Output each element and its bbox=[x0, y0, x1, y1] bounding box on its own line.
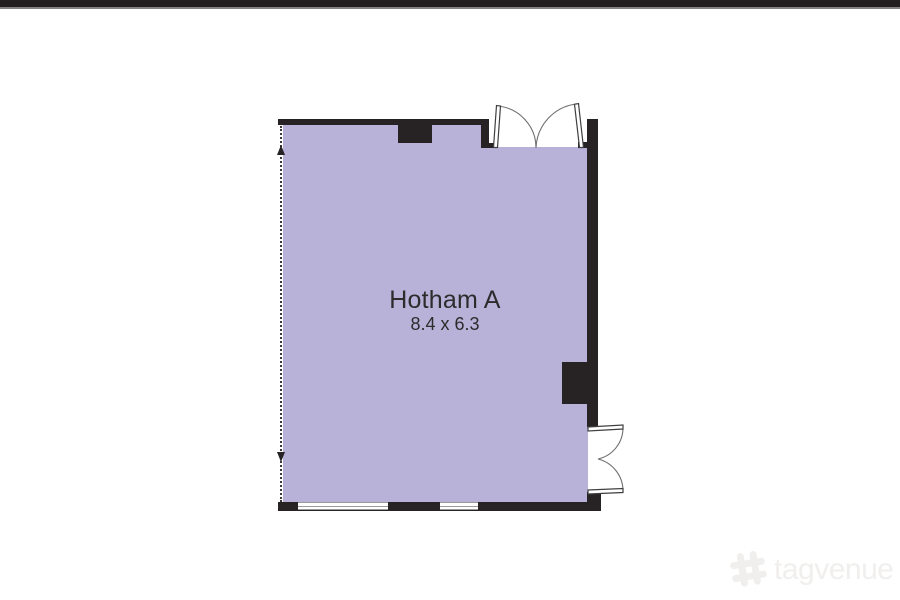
dimension-line-left bbox=[280, 126, 282, 502]
double-door-bottom-right bbox=[588, 425, 623, 494]
pier-right-wall bbox=[562, 362, 588, 404]
window-left bbox=[298, 502, 388, 510]
wall-right bbox=[587, 119, 598, 427]
door-swing-arc bbox=[497, 106, 536, 148]
watermark: tagvenue bbox=[730, 549, 893, 591]
window-center bbox=[440, 502, 478, 510]
door-swing-arc bbox=[598, 459, 623, 491]
room-area-top bbox=[283, 124, 482, 148]
room-label: Hotham A 8.4 x 6.3 bbox=[285, 287, 605, 335]
room-name: Hotham A bbox=[285, 287, 605, 313]
double-door-top-right bbox=[494, 104, 584, 148]
window-pane-line bbox=[298, 506, 388, 507]
door-swing-arc bbox=[536, 104, 576, 148]
door-leaf bbox=[494, 106, 501, 148]
column-top-wall bbox=[398, 119, 432, 143]
door-swing-arc bbox=[598, 428, 623, 460]
door-leaf bbox=[575, 104, 584, 148]
room-dimensions: 8.4 x 6.3 bbox=[285, 314, 605, 335]
dimension-arrow-down-icon bbox=[277, 452, 285, 462]
dimension-arrow-up-icon bbox=[277, 145, 285, 155]
floor-plan: Hotham A 8.4 x 6.3 bbox=[0, 0, 900, 600]
tagvenue-hash-icon bbox=[730, 549, 767, 591]
wall-top bbox=[278, 119, 482, 125]
watermark-text: tagvenue bbox=[774, 549, 893, 591]
window-pane-line bbox=[440, 506, 478, 507]
door-jamb-left-foot bbox=[481, 143, 494, 148]
